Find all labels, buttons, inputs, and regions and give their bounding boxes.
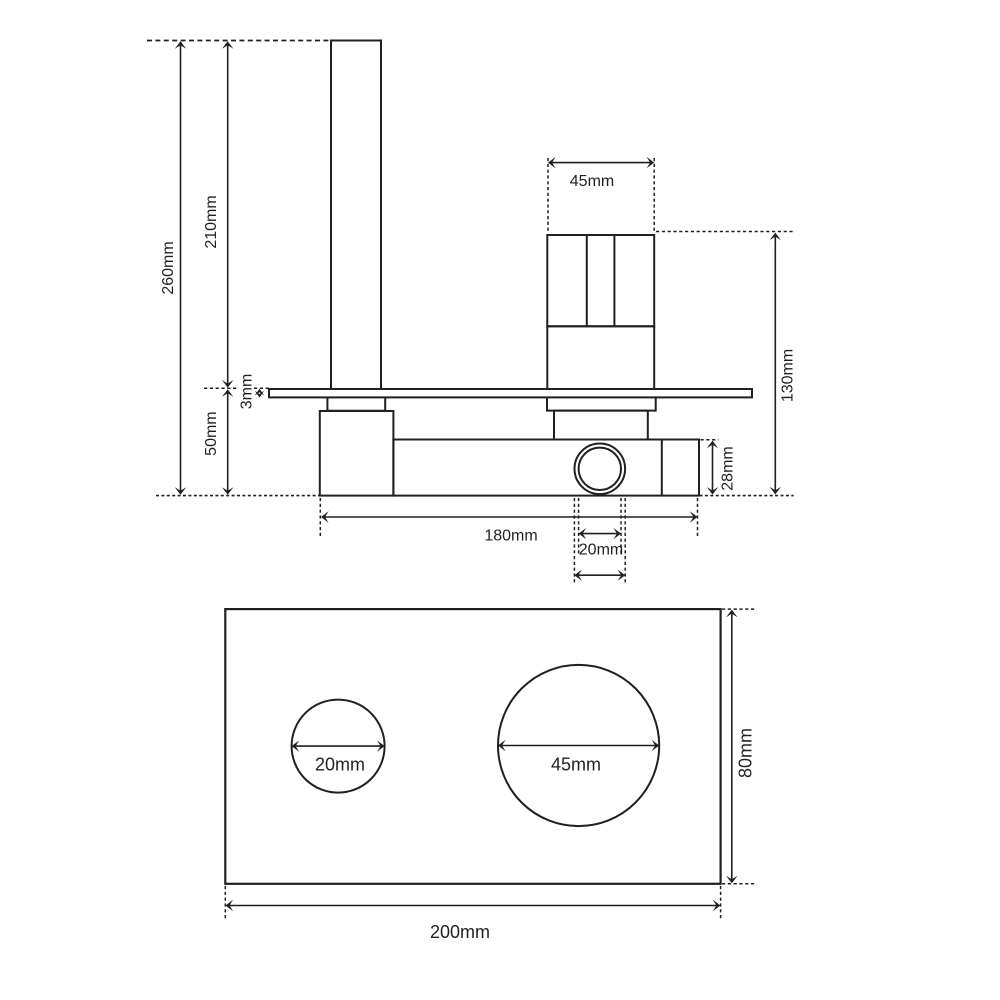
- svg-text:130mm: 130mm: [779, 349, 796, 402]
- svg-text:3mm: 3mm: [238, 374, 255, 410]
- svg-text:28mm: 28mm: [720, 446, 737, 490]
- svg-text:20mm: 20mm: [315, 755, 365, 775]
- svg-text:210mm: 210mm: [203, 195, 220, 248]
- svg-text:260mm: 260mm: [160, 241, 177, 294]
- svg-text:180mm: 180mm: [484, 528, 537, 545]
- svg-text:80mm: 80mm: [736, 728, 756, 778]
- svg-text:50mm: 50mm: [203, 411, 220, 455]
- svg-text:45mm: 45mm: [570, 173, 614, 190]
- svg-text:20mm: 20mm: [579, 542, 623, 559]
- svg-text:45mm: 45mm: [551, 755, 601, 775]
- svg-text:200mm: 200mm: [430, 922, 490, 942]
